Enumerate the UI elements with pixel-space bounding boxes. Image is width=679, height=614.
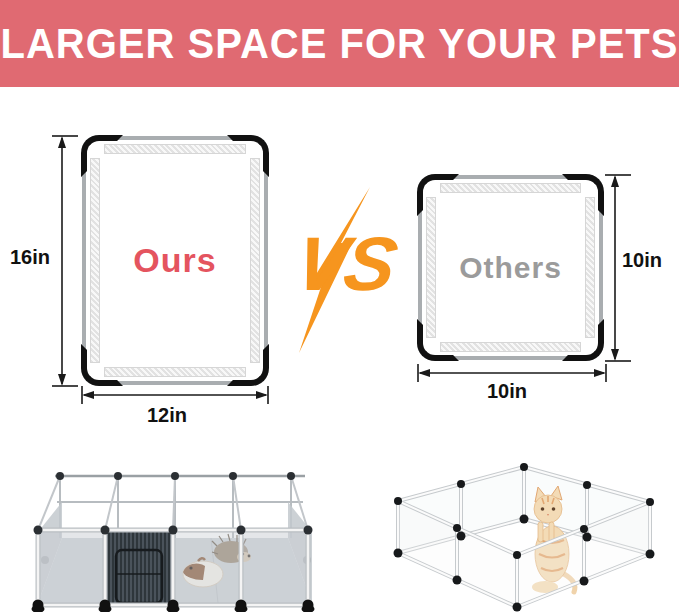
panel-edge-texture (104, 144, 246, 154)
panel-corner-icon (417, 174, 459, 216)
panel-corner-icon (81, 344, 123, 386)
others-product-photo (352, 462, 662, 612)
panel-edge-texture (440, 183, 581, 193)
header-title: LARGER SPACE FOR YOUR PETS (1, 19, 679, 68)
vs-graphic: VS (283, 183, 395, 355)
panel-corner-icon (417, 319, 459, 361)
panel-edge-texture (250, 158, 260, 363)
front-panel (40, 532, 103, 603)
front-panel (243, 532, 306, 603)
others-height-label: 10in (622, 249, 662, 272)
panel-corner-icon (81, 135, 123, 177)
panel-edge-texture (426, 197, 436, 338)
others-size-panel: Others (418, 175, 603, 360)
panel-edge-texture (440, 342, 581, 352)
others-label: Others (459, 251, 562, 285)
panel-corner-icon (227, 135, 269, 177)
panel-edge-texture (90, 158, 100, 363)
panel-corner-icon (562, 174, 604, 216)
ours-product-photo (5, 462, 335, 612)
panel-corner-icon (227, 344, 269, 386)
header-banner: LARGER SPACE FOR YOUR PETS (0, 0, 679, 87)
panel-corner-icon (562, 319, 604, 361)
panel-edge-texture (585, 197, 595, 338)
panel-edge-texture (104, 367, 246, 377)
ours-label: Ours (133, 241, 216, 280)
ours-width-label: 12in (147, 404, 187, 427)
front-panel (175, 532, 239, 603)
ours-height-label: 16in (10, 246, 50, 269)
wire-door (106, 532, 172, 603)
ours-size-panel: Ours (82, 136, 268, 385)
others-width-label: 10in (487, 380, 527, 403)
vs-bolt-and-letters: VS (283, 183, 395, 355)
vs-label: VS (289, 222, 403, 306)
infographic: LARGER SPACE FOR YOUR PETS Ours 16in 12i… (0, 0, 679, 614)
ours-height-dimension-arrow (48, 132, 82, 390)
